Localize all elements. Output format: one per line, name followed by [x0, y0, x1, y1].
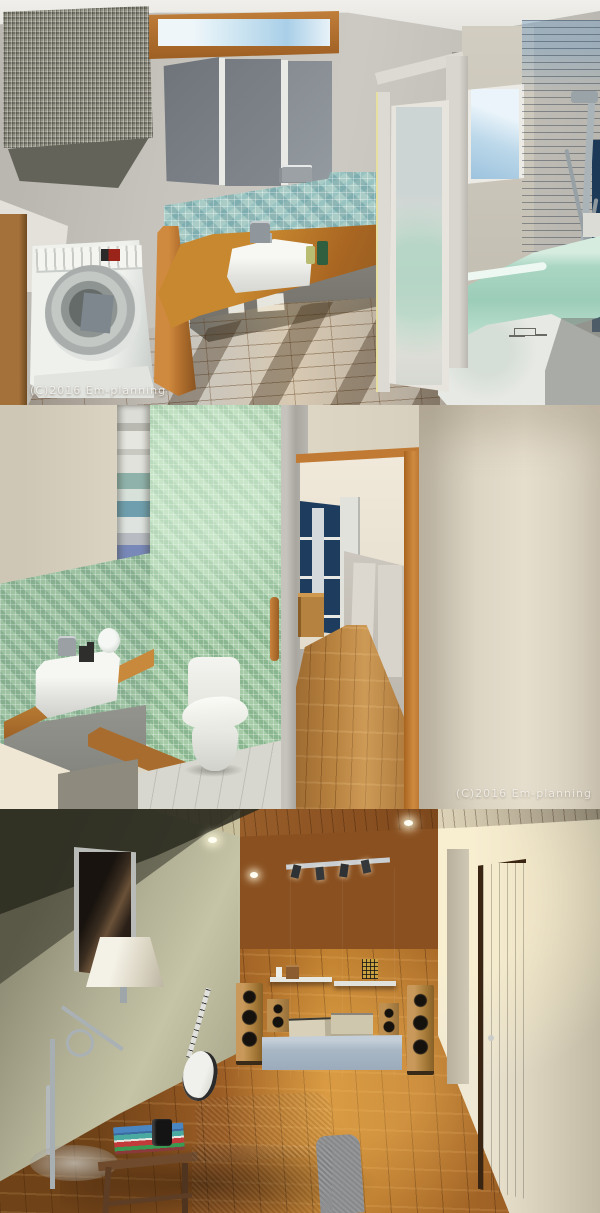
shower-head [571, 91, 598, 103]
wood-door [478, 859, 526, 1199]
vessel-sink [227, 239, 313, 293]
wall-poster [378, 565, 402, 677]
door-jamb-right [446, 56, 468, 368]
glass-bathroom-door [389, 100, 449, 392]
audio-equipment [331, 1013, 373, 1038]
audio-sideboard [262, 1035, 402, 1070]
track-light-bar [286, 857, 390, 869]
lamp-stem [120, 985, 127, 1003]
toiletry-bottle [317, 241, 328, 265]
bookshelf-speaker-left [267, 999, 289, 1032]
render-collage: (C)2016 Em-planning [0, 0, 600, 1213]
transom-window-glass [158, 19, 330, 46]
downlight [208, 837, 217, 843]
armchair [192, 1095, 362, 1213]
bathroom-window [466, 84, 524, 184]
armchair-body [192, 1145, 332, 1213]
downlight [250, 872, 258, 878]
shelf-item [276, 967, 282, 977]
washer-display [101, 249, 120, 261]
shower-shelf [583, 213, 600, 237]
wall-fixture [282, 165, 312, 182]
bookshelf-speaker-right [379, 1003, 399, 1037]
door-wood-handle [270, 597, 279, 661]
floating-shelf [334, 981, 396, 986]
book-stack [113, 1123, 185, 1155]
decor-puff [98, 628, 120, 653]
right-wall [419, 405, 600, 809]
wood-stool [298, 593, 324, 637]
table-leg [182, 1163, 188, 1213]
door-jamb-left [376, 92, 390, 392]
panel-toilet-room: (C)2016 Em-planning [0, 405, 600, 809]
lamp-pole [50, 1039, 55, 1189]
sink-faucet [58, 636, 76, 656]
tower-speaker-left [236, 983, 263, 1065]
toiletry-bottle [306, 246, 315, 264]
shelf-item-decor [362, 959, 378, 979]
far-white-panel [312, 508, 324, 606]
black-mug [152, 1119, 172, 1146]
track-spotlight [315, 867, 324, 881]
wall-return [447, 849, 469, 1084]
tower-speaker-right [407, 985, 434, 1075]
watermark-text: (C)2016 Em-planning [30, 384, 166, 397]
panel-audio-room [0, 809, 600, 1213]
floor-drain [514, 328, 536, 336]
mirror-cabinet-middle [225, 59, 281, 186]
panel-bathroom-laundry: (C)2016 Em-planning [0, 0, 600, 405]
floating-shelf [270, 977, 332, 982]
mirror-cabinet-left [162, 57, 219, 185]
watermark-text: (C)2016 Em-planning [456, 787, 592, 800]
downlight [404, 820, 413, 826]
shelf-item-box [286, 965, 299, 979]
wood-wall-edge [0, 214, 27, 405]
textured-wall-cabinet [3, 6, 153, 152]
audio-equipment [289, 1017, 332, 1038]
washer-door-glass [80, 293, 114, 334]
sink-faucet [250, 221, 270, 243]
door-knob [488, 1035, 494, 1041]
toilet [178, 657, 256, 779]
lamp-ring-handle [66, 1029, 94, 1057]
